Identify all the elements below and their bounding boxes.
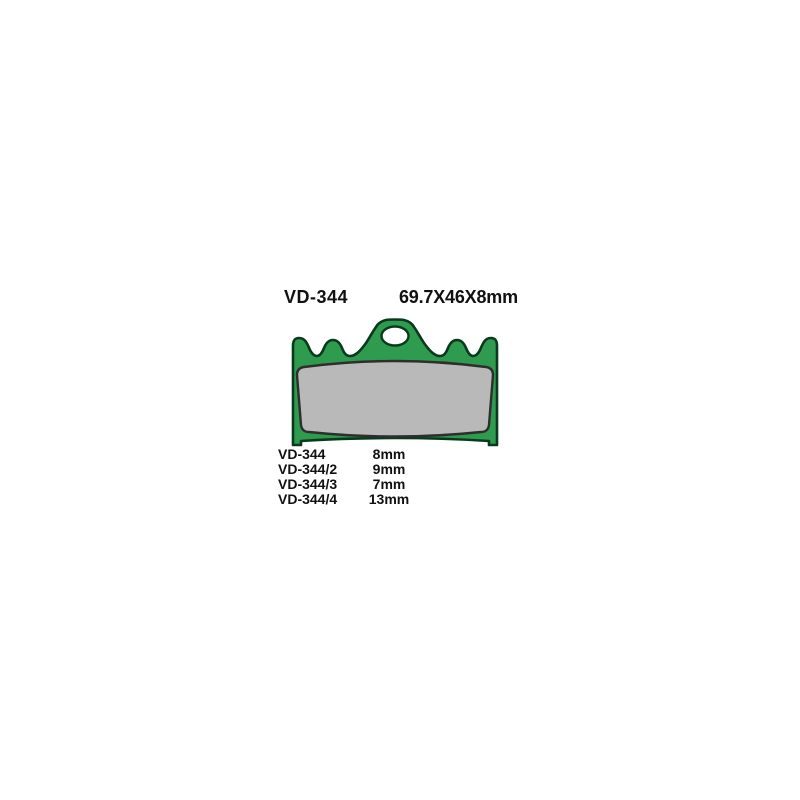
variant-row: VD-344/3 7mm: [278, 476, 438, 491]
variant-thickness: 7mm: [356, 476, 422, 492]
mounting-hole-icon: [382, 327, 409, 346]
variant-table: VD-344 8mm VD-344/2 9mm VD-344/3 7mm VD-…: [278, 446, 438, 506]
friction-pad: [297, 361, 493, 437]
variant-row: VD-344 8mm: [278, 446, 438, 461]
variant-model: VD-344: [278, 446, 356, 462]
variant-model: VD-344/2: [278, 461, 356, 477]
variant-model: VD-344/4: [278, 491, 356, 507]
variant-thickness: 13mm: [356, 491, 422, 507]
variant-thickness: 9mm: [356, 461, 422, 477]
variant-row: VD-344/2 9mm: [278, 461, 438, 476]
model-code-title: VD-344: [284, 287, 348, 308]
variant-model: VD-344/3: [278, 476, 356, 492]
product-image-canvas: VD-344 69.7X46X8mm VD-344 8mm VD-344/2 9…: [0, 0, 800, 800]
variant-row: VD-344/4 13mm: [278, 491, 438, 506]
variant-thickness: 8mm: [356, 446, 422, 462]
brake-pad-diagram: [280, 312, 520, 452]
title-row: VD-344 69.7X46X8mm: [0, 287, 800, 309]
dimensions-label: 69.7X46X8mm: [399, 287, 518, 308]
